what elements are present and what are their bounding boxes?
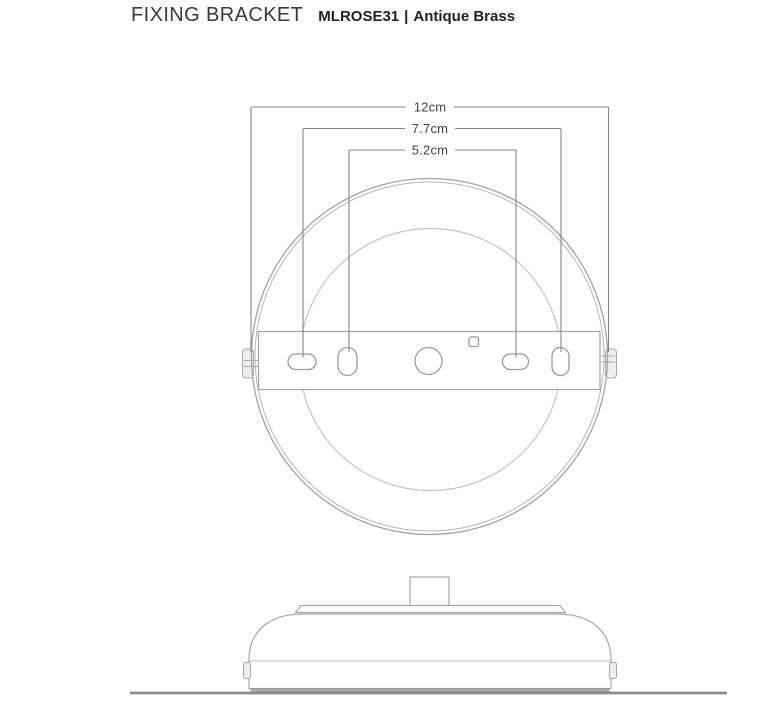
screw-slot-left-horizontal xyxy=(288,354,316,370)
side-profile-view xyxy=(130,577,727,693)
outer-fixing-centres-label: 7.7cm xyxy=(412,121,448,136)
spec-sheet-page: FIXING BRACKET MLROSE31 | Antique Brass xyxy=(0,0,774,705)
base-strip xyxy=(251,689,609,692)
inner-fixing-centres-label: 5.2cm xyxy=(412,143,448,158)
dimension-line-outer-centres xyxy=(303,129,561,358)
dimension-line-inner-centres xyxy=(349,150,516,358)
stem xyxy=(410,577,449,608)
top-plate xyxy=(296,606,566,613)
overall-diameter-label: 12cm xyxy=(414,100,447,115)
fixing-bracket-technical-drawing: 12cm 7.7cm 5.2cm xyxy=(0,0,774,705)
rose-body xyxy=(249,614,611,689)
top-view xyxy=(243,179,617,535)
centre-cable-hole xyxy=(415,348,442,375)
profile-lug-left xyxy=(244,663,251,679)
small-square-hole xyxy=(469,337,479,347)
profile-lug-right xyxy=(610,663,617,679)
screw-slot-left-vertical xyxy=(338,348,357,376)
